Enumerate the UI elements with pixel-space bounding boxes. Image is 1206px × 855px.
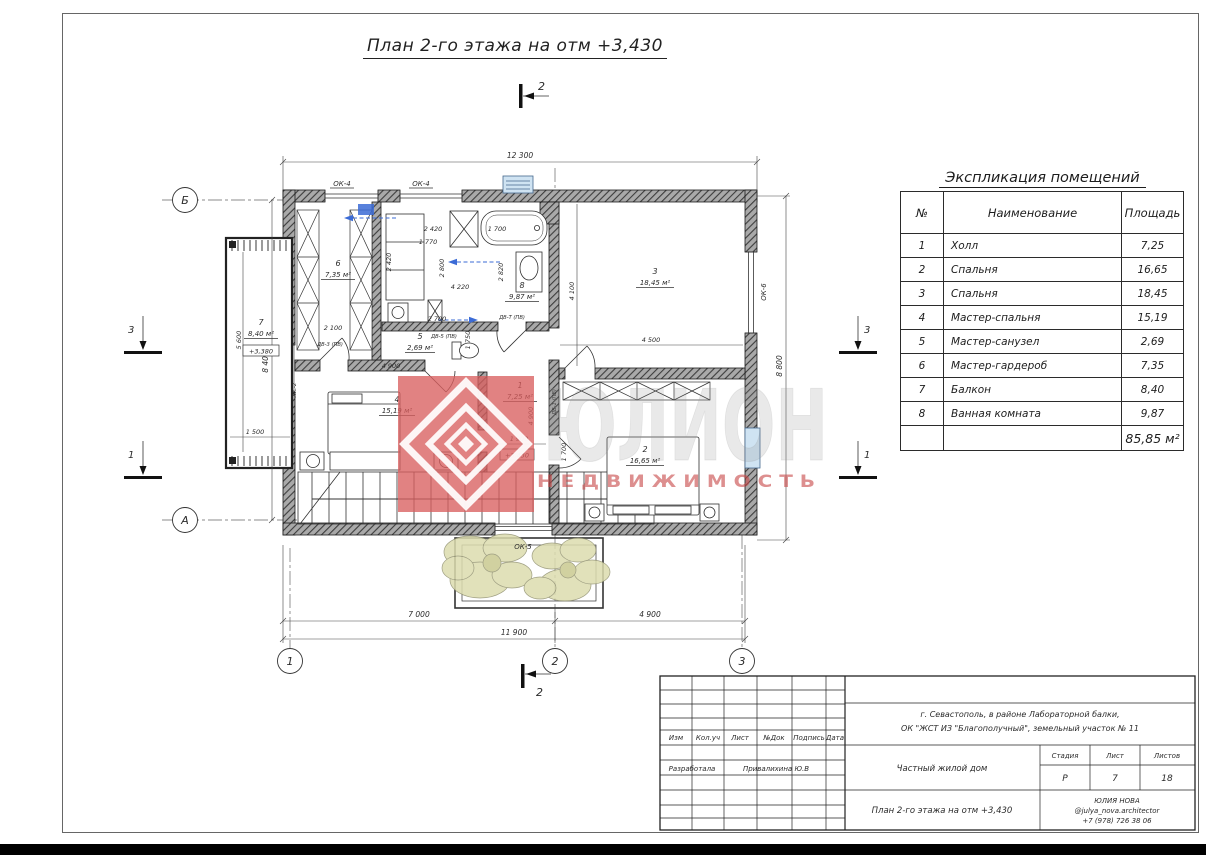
axis-3: 3 [739,655,746,668]
tb-col-podpis: Подпись [793,734,825,742]
tb-col-izm: Изм [669,734,684,742]
section-right-3: 3 [864,325,870,336]
title-block: Изм Кол.уч Лист №Док Подпись Дата Разраб… [660,676,1195,830]
dim-overall-top: 12 300 [507,151,533,160]
watermark: ЮЛИОН Н Е Д В И Ж И М О С Т Ь [398,370,828,512]
section-left-1: 1 [128,450,134,461]
table-row: 5Мастер-санузел2,69 [901,330,1184,354]
col-name: Наименование [944,192,1122,234]
tb-address-2: ОК "ЖСТ ИЗ "Благополучный", земельный уч… [901,724,1139,733]
watermark-brand: ЮЛИОН [543,370,828,484]
tb-stage-value: Р [1062,774,1068,784]
dim-int: 2 700 [428,315,447,323]
tb-developer-name: Привалихина Ю.В [743,765,809,773]
axis-2: 2 [552,655,559,668]
dim-int: 1 770 [419,238,438,246]
axis-1: 1 [287,655,294,668]
tb-drawing-title: План 2-го этажа на отм +3,430 [872,806,1013,816]
section-bottom: 2 [536,686,543,699]
dim-int: 1 750 [464,331,472,350]
svg-text:6: 6 [335,259,340,268]
tb-sheets-label: Листов [1153,752,1180,760]
dim-bottom-total: 11 900 [501,628,527,637]
door-label: ДВ-Т (ПВ) [498,315,525,321]
tb-author: ЮЛИЯ НОВА [1094,797,1140,805]
tb-sheets-value: 18 [1161,774,1173,784]
section-right-1: 1 [864,450,870,461]
dim-int: 4 100 [568,282,576,301]
table-total-row: 85,85 м² [901,426,1184,451]
window-label: ОК-6 [760,283,768,301]
dim-bottom-right: 4 900 [639,610,661,619]
door-label: ДВ-3 (ПВ) [316,342,343,348]
explication-title: Экспликация помещений [900,170,1185,186]
watermark-subtitle: Н Е Д В И Ж И М О С Т Ь [537,472,815,492]
tb-sheet-label: Лист [1105,752,1125,760]
dim-int: 2 820 [497,263,505,282]
dim-int: 1 700 [488,225,507,233]
dim-int: 5 600 [235,331,243,350]
dim-bottom-left: 7 000 [408,610,430,619]
dim-int: 2 420 [424,225,443,233]
bottom-black-bar [0,844,1206,855]
axis-a: А [180,514,189,527]
svg-text:3: 3 [652,267,657,276]
dim-int: 4 500 [642,336,661,344]
window-label: ОК-4 [333,180,350,188]
dim-int: 2 800 [438,259,446,278]
tb-address-1: г. Севастополь, в районе Лабораторной ба… [920,710,1119,719]
dim-int: 2 100 [324,324,343,332]
col-num: № [901,192,944,234]
dim-int: 4 220 [451,283,470,291]
section-top: 2 [538,80,545,93]
dim-int: 2 420 [385,253,393,272]
tb-col-data: Дата [825,734,844,742]
svg-text:8: 8 [519,281,524,290]
dim-int: 4 900 [382,362,401,370]
col-area: Площадь [1122,192,1184,234]
tb-sheet-value: 7 [1112,774,1118,784]
svg-text:9,87 м²: 9,87 м² [509,293,535,301]
table-row: 8Ванная комната9,87 [901,402,1184,426]
window-label: ОК-5 [514,543,532,551]
dim-int: 1 500 [246,428,265,436]
table-row: 6Мастер-гардероб7,35 [901,354,1184,378]
misc-label: ЖС-2 [292,383,298,398]
svg-text:18,45 м²: 18,45 м² [640,279,671,287]
section-left-3: 3 [128,325,134,336]
window-label: ОК-4 [412,180,429,188]
tb-col-ndoc: №Док [762,734,785,742]
svg-text:5: 5 [417,332,422,341]
table-row: 4Мастер-спальня15,19 [901,306,1184,330]
tb-col-list: Лист [730,734,750,742]
tb-col-koluch: Кол.уч [696,734,720,742]
explication-table: № Наименование Площадь 1Холл7,25 2Спальн… [900,191,1184,451]
door-label: ДВ-5 (ПВ) [430,334,457,340]
watermark-logo [398,376,534,512]
table-row: 1Холл7,25 [901,234,1184,258]
table-row: 2Спальня16,65 [901,258,1184,282]
tb-author-handle: @julya_nova.architector [1075,807,1161,815]
svg-text:2,69 м²: 2,69 м² [407,344,433,352]
tb-object: Частный жилой дом [897,764,988,774]
tb-author-phone: +7 (978) 726 38 06 [1082,817,1152,825]
room-explication: Экспликация помещений № Наименование Пло… [900,170,1185,451]
tb-stage-label: Стадия [1052,752,1079,760]
axis-b: Б [181,194,189,207]
svg-text:8,40 м²: 8,40 м² [248,330,274,338]
total-area: 85,85 м² [1122,426,1184,451]
drawing-sheet: План 2-го этажа на отм +3,430 [0,0,1206,855]
svg-text:7,35 м²: 7,35 м² [325,271,351,279]
tb-developer-label: Разработала [669,765,716,773]
table-row: 7Балкон8,40 [901,378,1184,402]
table-row: 3Спальня18,45 [901,282,1184,306]
elevation-mark: +3,380 [249,348,273,356]
room-label-3: 318,45 м² [636,267,674,288]
table-header-row: № Наименование Площадь [901,192,1184,234]
